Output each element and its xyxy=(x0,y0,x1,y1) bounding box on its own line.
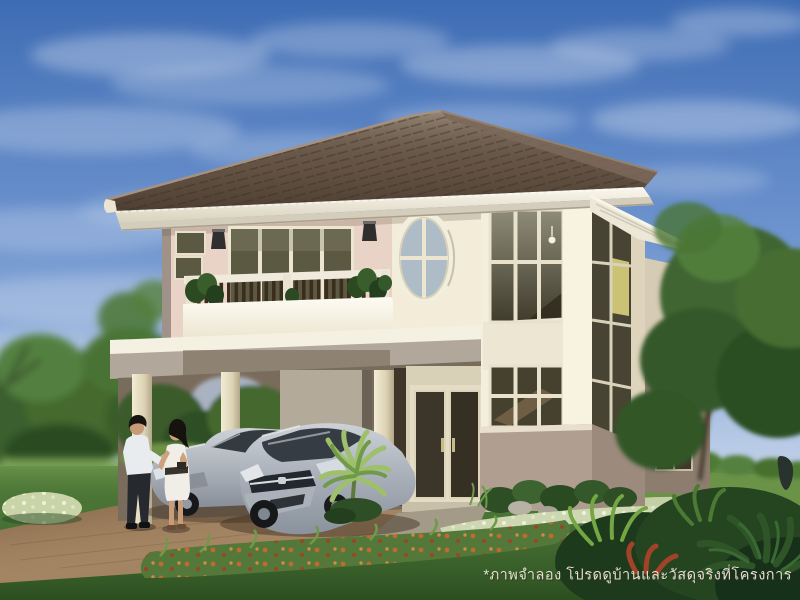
wall-lamp-right xyxy=(362,221,377,241)
door-handle-right xyxy=(452,438,455,452)
oval-window xyxy=(393,211,455,305)
watermark: *ภาพจำลอง โปรดดูบ้านและวัสดุจริงที่โครงก… xyxy=(483,565,793,586)
woman-clutch xyxy=(177,462,186,469)
left-flowerbed xyxy=(2,492,82,525)
hatchback-badge xyxy=(278,477,286,484)
small-window-1 xyxy=(176,232,205,254)
wall-corner-pilaster xyxy=(162,227,171,343)
architectural-rendering: *ภาพจำลอง โปรดดูบ้านและวัสดุจริงที่โครงก… xyxy=(0,0,800,600)
door-handle-left xyxy=(441,438,444,452)
woman-legs xyxy=(169,499,174,527)
watermark-text: *ภาพจำลอง โปรดดูบ้านและวัสดุจริงที่โครงก… xyxy=(483,565,792,584)
wall-lamp-left xyxy=(211,229,226,249)
bay-right-pilaster xyxy=(563,206,592,432)
door-reflection xyxy=(231,229,351,251)
corner-bay xyxy=(480,206,645,513)
entry-french-doors xyxy=(410,385,486,503)
